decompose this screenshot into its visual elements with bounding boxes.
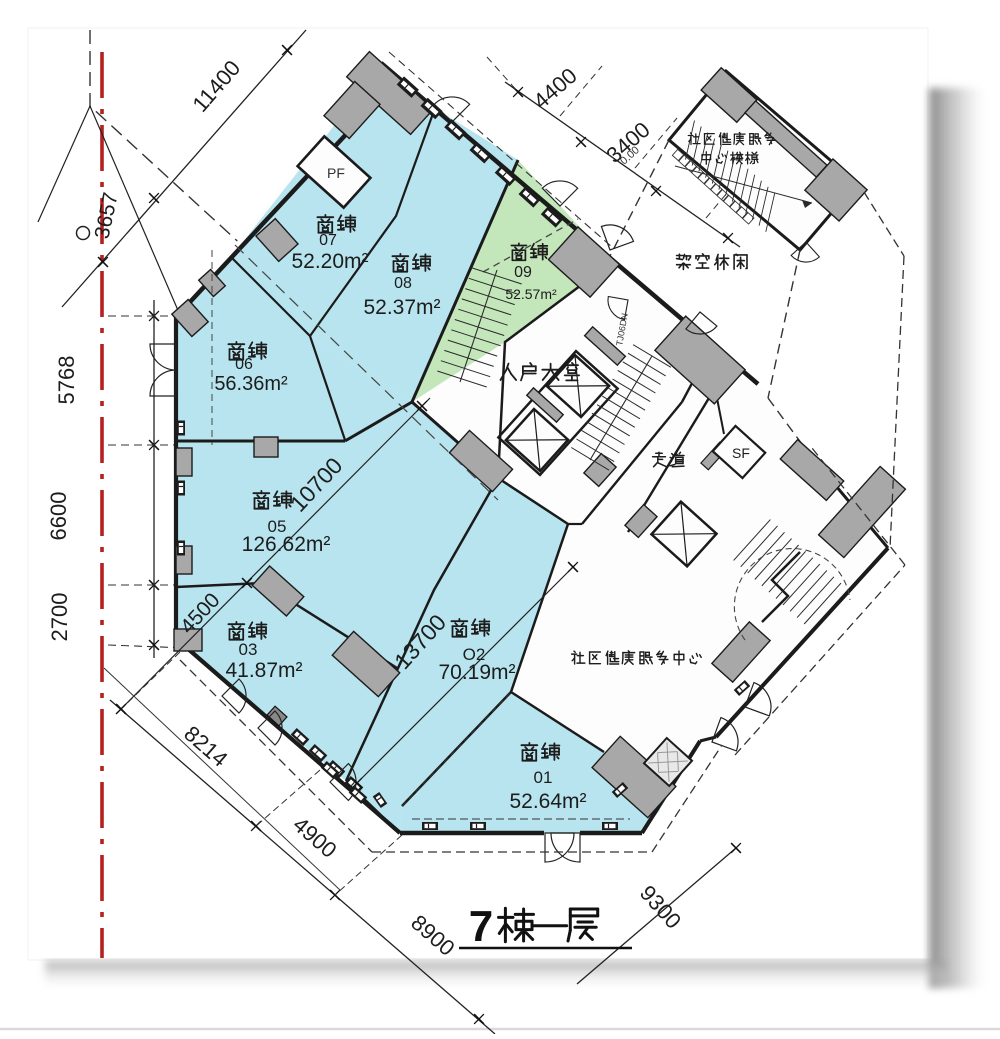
svg-text:126.62m²: 126.62m² [242, 533, 331, 556]
svg-text:52.37m²: 52.37m² [363, 296, 440, 319]
svg-text:52.64m²: 52.64m² [509, 790, 586, 813]
svg-text:2700: 2700 [47, 593, 72, 642]
svg-text:SF: SF [732, 445, 750, 461]
svg-text:PF: PF [327, 165, 345, 181]
svg-text:07: 07 [319, 232, 337, 249]
svg-text:6600: 6600 [46, 492, 71, 541]
svg-text:70.19m²: 70.19m² [438, 661, 515, 684]
svg-text:5768: 5768 [54, 356, 79, 405]
svg-text:56.36m²: 56.36m² [214, 373, 288, 395]
svg-text:01: 01 [534, 768, 553, 787]
svg-text:08: 08 [394, 275, 412, 292]
svg-text:52.57m²: 52.57m² [505, 286, 557, 302]
svg-text:03: 03 [239, 640, 258, 659]
svg-text:52.20m²: 52.20m² [291, 250, 368, 273]
svg-text:06: 06 [235, 356, 253, 373]
svg-text:7: 7 [469, 902, 493, 951]
svg-text:09: 09 [514, 264, 532, 281]
svg-text:41.87m²: 41.87m² [225, 659, 302, 682]
